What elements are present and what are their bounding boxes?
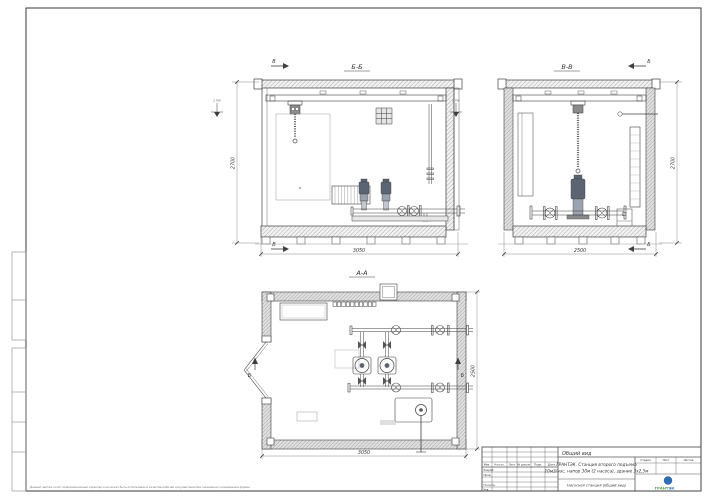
svg-text:Б: Б (647, 59, 651, 65)
svg-text:2.700: 2.700 (213, 99, 221, 103)
pump-valves-lower (358, 374, 391, 387)
radiator-side (630, 127, 640, 207)
svg-text:2700: 2700 (671, 157, 677, 169)
floor-box (297, 412, 317, 421)
view-title-plan: А-А (355, 269, 367, 277)
stamp-col-izm: Изм. (484, 463, 490, 467)
stamp-doc-type: Общий вид (562, 451, 592, 457)
stamp-row-prov: Пров. (484, 473, 492, 477)
plan-cut-marker-left: Б (248, 358, 258, 380)
svg-text:Б: Б (248, 373, 252, 379)
svg-text:Б: Б (647, 242, 651, 248)
riser-pipe (427, 104, 434, 184)
pump-unit-1 (359, 179, 369, 210)
view-title-front: Б-Б (351, 63, 363, 71)
svg-text:2700: 2700 (231, 157, 237, 169)
cut-marker-v-top: В (271, 59, 289, 69)
roof-slab (502, 80, 656, 88)
level-mark-left: 2.700 (211, 99, 223, 118)
view-front-section: Б-Б (211, 59, 468, 257)
floor (498, 226, 662, 244)
roof-slab (258, 80, 458, 88)
drain-box (617, 209, 632, 227)
drawing-sheet: Б-Б (0, 0, 708, 500)
stamp-col-data: Дата (548, 463, 555, 467)
vertical-pump (567, 175, 589, 219)
plan-walls (262, 292, 466, 449)
stamp-title-line2: 10м3/час, напор 30м (2 насоса), здание 3… (545, 469, 649, 474)
stamp-row-utv: Утв. (484, 487, 490, 491)
title-block: Изм. Кол.уч. Лист № докум. Подп. Дата Ра… (482, 447, 701, 491)
dim-side-height: 2700 (659, 80, 682, 245)
drawing-canvas: Б-Б (0, 0, 708, 500)
logo-text-blue: ЭК (669, 486, 676, 491)
chain-hoist (571, 101, 585, 173)
svg-text:3050: 3050 (353, 248, 365, 254)
floor-patch (380, 420, 396, 425)
left-margin-boxes (12, 252, 26, 491)
stamp-sheet-label: Лист (663, 458, 670, 462)
chain-hoist (288, 101, 302, 143)
stamp-stage-label: Стадия (640, 458, 651, 462)
stamp-row-razrab: Разраб. (484, 468, 495, 472)
callout-a: а (299, 186, 301, 190)
stamp-row-nkontr: Н.контр. (484, 483, 496, 487)
company-logo: ГРАНТ ЭК (655, 477, 676, 491)
plan-cabinet (280, 303, 327, 320)
stamp-subtitle: Насосная станция (общий вид) (567, 484, 627, 488)
pump-valves-upper (358, 332, 391, 357)
door-leaf-side (518, 113, 533, 196)
cut-marker-v-bottom: В (271, 242, 289, 252)
vent-grille (376, 108, 392, 124)
pump-unit-2 (381, 179, 391, 210)
wall-cabinet (276, 114, 330, 200)
stamp-col-koluch: Кол.уч. (494, 463, 504, 467)
svg-text:3050: 3050 (358, 450, 370, 456)
entry-door (244, 336, 271, 404)
ceiling-beam (266, 91, 446, 101)
svg-text:2500: 2500 (574, 248, 586, 254)
logo-text-green: ГРАНТ (655, 486, 669, 491)
svg-text:2.700: 2.700 (452, 99, 460, 103)
svg-text:В: В (272, 59, 276, 65)
stamp-col-dokum: № докум. (517, 463, 530, 467)
plan-pumps (335, 350, 396, 374)
stamp-sheets-label: Листов (683, 458, 693, 462)
plan-radiator (333, 302, 376, 307)
stamp-col-podp: Подп. (534, 463, 542, 467)
roof-vent (380, 284, 397, 300)
cut-marker-b-top: Б (628, 59, 651, 69)
stamp-col-list: Лист (509, 463, 516, 467)
view-plan: А-А (244, 269, 480, 459)
svg-text:В: В (272, 242, 276, 248)
view-side-section: В-В (498, 59, 682, 257)
suction-manifold (350, 326, 473, 336)
sheet-disclaimer: Данный чертеж носит информационный харак… (29, 485, 250, 489)
svg-text:2500: 2500 (471, 365, 477, 377)
discharge-manifold (348, 383, 473, 393)
ceiling-beam (513, 91, 646, 101)
dim-front-height: 2700 (231, 80, 260, 245)
view-title-side: В-В (561, 63, 573, 71)
pump-skid (352, 216, 448, 221)
corner-columns (267, 294, 459, 445)
svg-text:Б: Б (461, 373, 465, 379)
stamp-title-line1: ГРАНТЭК. Станция второго подъема (556, 462, 637, 467)
floor (255, 226, 468, 244)
